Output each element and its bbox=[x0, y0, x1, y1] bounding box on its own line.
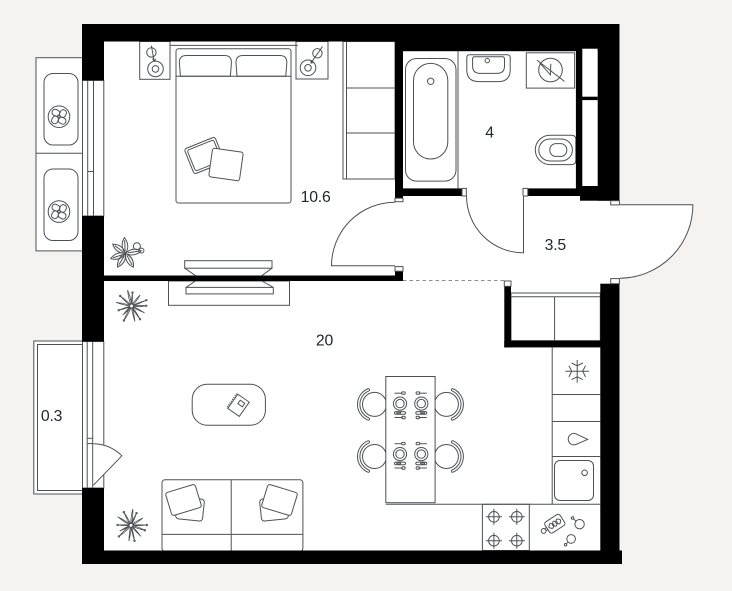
svg-text:3.5: 3.5 bbox=[545, 237, 567, 254]
svg-text:4: 4 bbox=[485, 124, 494, 141]
svg-text:0.3: 0.3 bbox=[41, 408, 63, 425]
svg-text:10.6: 10.6 bbox=[301, 189, 331, 206]
svg-text:20: 20 bbox=[316, 332, 334, 349]
